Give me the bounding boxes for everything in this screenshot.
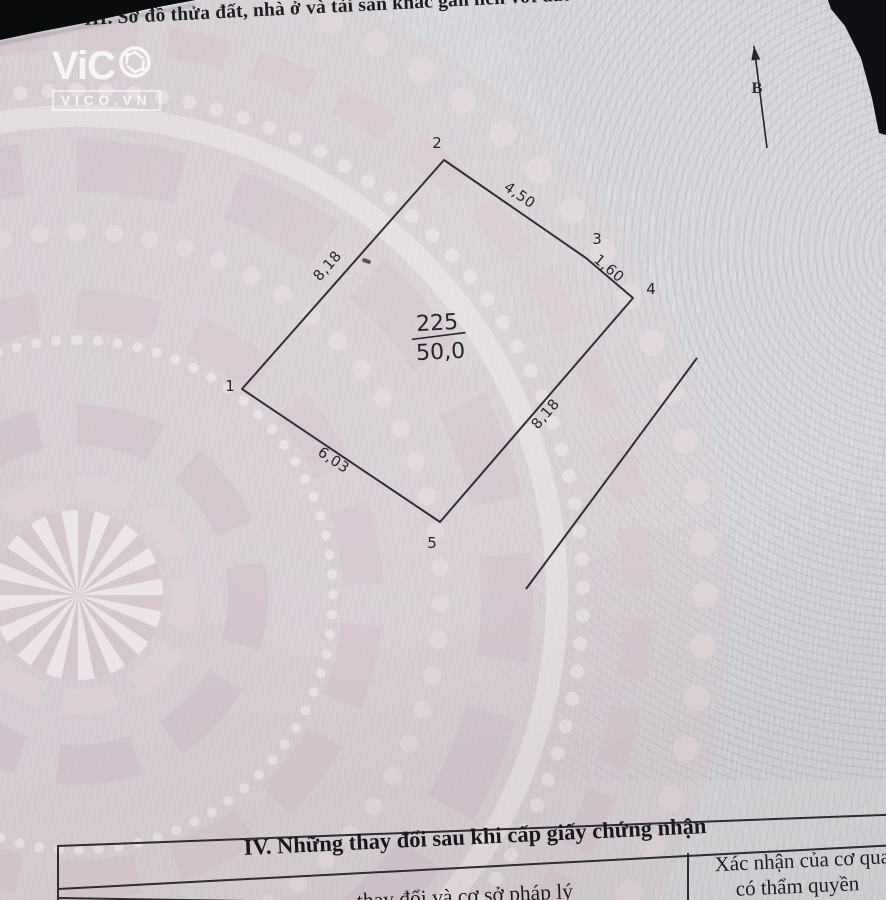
certificate-page-photo: III. Sơ đồ thửa đất, nhà ở và tài sản kh…	[0, 0, 886, 900]
vico-watermark: ViC VICO.VN	[52, 44, 161, 111]
photo-lighting	[0, 0, 886, 900]
vico-logo: ViC	[52, 44, 161, 87]
aperture-icon	[117, 44, 153, 87]
table-column-divider	[687, 853, 689, 900]
table-left-border	[57, 845, 59, 900]
vico-site-label: VICO.VN	[52, 90, 161, 111]
vico-logo-text: ViC	[52, 46, 115, 86]
